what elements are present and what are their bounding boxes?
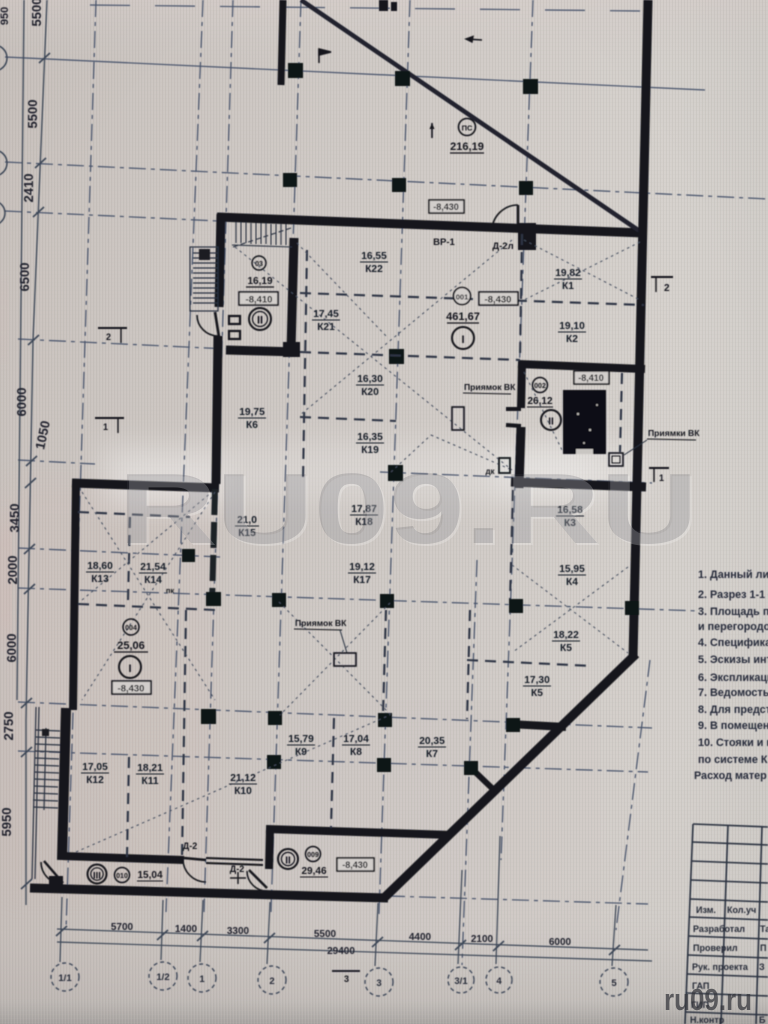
- svg-text:19,82: 19,82: [555, 268, 581, 279]
- svg-text:950: 950: [0, 7, 11, 25]
- svg-text:010: 010: [116, 873, 128, 880]
- svg-text:2: 2: [106, 332, 111, 342]
- svg-text:009: 009: [307, 852, 319, 859]
- svg-text:002: 002: [534, 383, 546, 390]
- svg-text:2: 2: [664, 283, 670, 294]
- svg-text:16,19: 16,19: [247, 276, 272, 287]
- svg-text:1400: 1400: [175, 924, 198, 935]
- svg-text:18,22: 18,22: [553, 630, 579, 641]
- svg-text:461,67: 461,67: [446, 311, 480, 323]
- svg-text:3/1: 3/1: [454, 976, 468, 987]
- svg-text:I: I: [128, 663, 131, 675]
- svg-text:К22: К22: [365, 264, 383, 275]
- svg-text:Та: Та: [760, 924, 768, 934]
- svg-text:6000: 6000: [14, 388, 29, 417]
- svg-text:1. Данный лист: 1. Данный лист: [698, 569, 768, 581]
- svg-text:Приямки ВК: Приямки ВК: [648, 428, 700, 438]
- svg-text:ПС: ПС: [462, 124, 473, 133]
- svg-text:4400: 4400: [409, 932, 432, 943]
- svg-text:5. Эскизы инте: 5. Эскизы инте: [698, 654, 768, 666]
- svg-text:16,55: 16,55: [361, 251, 387, 262]
- svg-text:-8,430: -8,430: [433, 202, 459, 212]
- svg-text:5: 5: [611, 978, 617, 989]
- svg-text:3: 3: [344, 974, 349, 984]
- svg-text:II: II: [548, 417, 554, 428]
- svg-text:Кол.уч: Кол.уч: [727, 905, 756, 915]
- svg-text:5500: 5500: [314, 929, 337, 940]
- svg-text:3. Площадь по: 3. Площадь по: [698, 606, 768, 618]
- svg-text:3: 3: [376, 978, 381, 989]
- svg-text:19,75: 19,75: [239, 407, 265, 418]
- svg-text:К21: К21: [317, 322, 335, 333]
- svg-text:К4: К4: [566, 577, 578, 588]
- svg-text:004: 004: [125, 625, 137, 632]
- svg-text:Расход матер: Расход матер: [694, 770, 767, 782]
- svg-text:16,30: 16,30: [357, 374, 383, 385]
- svg-text:17,30: 17,30: [524, 675, 550, 686]
- svg-text:18,60: 18,60: [87, 561, 113, 572]
- svg-text:ru09.ru: ru09.ru: [664, 982, 752, 1017]
- svg-text:18,21: 18,21: [137, 763, 163, 774]
- svg-text:-8,410: -8,410: [246, 295, 273, 306]
- svg-text:5700: 5700: [111, 922, 134, 933]
- svg-text:III: III: [93, 871, 101, 882]
- svg-text:7. Ведомость п: 7. Ведомость п: [698, 687, 768, 699]
- svg-text:К20: К20: [361, 387, 379, 398]
- svg-text:2000: 2000: [5, 556, 20, 585]
- svg-text:К14: К14: [144, 575, 162, 586]
- svg-text:4: 4: [496, 976, 502, 987]
- svg-text:1/1: 1/1: [58, 973, 72, 984]
- svg-text:2: 2: [269, 976, 274, 987]
- svg-text:6500: 6500: [17, 263, 32, 292]
- svg-text:5500: 5500: [25, 100, 40, 129]
- svg-text:29400: 29400: [327, 946, 355, 957]
- svg-text:-8,430: -8,430: [485, 295, 512, 306]
- svg-text:Изм.: Изм.: [696, 905, 716, 915]
- svg-text:26,12: 26,12: [527, 396, 552, 407]
- svg-text:RU09.RU: RU09.RU: [118, 453, 698, 565]
- svg-text:К10: К10: [234, 786, 252, 797]
- svg-text:К11: К11: [142, 776, 159, 787]
- svg-text:17,04: 17,04: [343, 734, 369, 745]
- svg-text:1/2: 1/2: [156, 972, 169, 983]
- svg-text:Проверил: Проверил: [693, 943, 738, 953]
- svg-text:03: 03: [255, 261, 263, 268]
- svg-text:К5: К5: [560, 643, 572, 654]
- svg-text:9. В помещени: 9. В помещени: [698, 720, 768, 732]
- svg-text:19,10: 19,10: [559, 321, 585, 332]
- svg-text:К2: К2: [566, 334, 578, 345]
- svg-text:17,45: 17,45: [313, 309, 339, 320]
- svg-text:II: II: [257, 315, 263, 327]
- svg-text:К12: К12: [86, 775, 104, 786]
- svg-text:II: II: [285, 856, 291, 867]
- svg-text:15,79: 15,79: [288, 734, 314, 745]
- svg-text:-8,430: -8,430: [342, 860, 368, 870]
- svg-text:К17: К17: [353, 575, 371, 586]
- svg-text:З: З: [759, 962, 765, 972]
- svg-text:2750: 2750: [1, 712, 16, 741]
- svg-text:2100: 2100: [471, 934, 494, 945]
- svg-text:2410: 2410: [21, 174, 36, 203]
- svg-text:10. Стояки и кр: 10. Стояки и кр: [698, 737, 768, 749]
- svg-text:К7: К7: [426, 749, 438, 760]
- svg-text:1: 1: [103, 422, 108, 432]
- svg-text:21,12: 21,12: [230, 773, 256, 784]
- svg-text:-8,430: -8,430: [118, 684, 145, 695]
- svg-text:6000: 6000: [4, 634, 19, 663]
- svg-text:3450: 3450: [7, 504, 22, 533]
- svg-text:8. Для предста: 8. Для предста: [698, 704, 768, 716]
- svg-text:25,06: 25,06: [117, 640, 145, 652]
- svg-text:29,46: 29,46: [301, 866, 326, 877]
- svg-text:Д-2: Д-2: [183, 841, 197, 851]
- svg-text:216,19: 216,19: [450, 141, 484, 153]
- svg-text:К6: К6: [246, 420, 258, 431]
- svg-text:6000: 6000: [549, 937, 572, 948]
- svg-text:ВР-1: ВР-1: [433, 237, 455, 248]
- svg-text:-8,410: -8,410: [578, 373, 604, 383]
- svg-text:20,35: 20,35: [419, 736, 445, 747]
- svg-text:К8: К8: [350, 747, 362, 758]
- svg-text:3300: 3300: [227, 926, 250, 937]
- svg-text:2. Разрез 1-1 с: 2. Разрез 1-1 с: [698, 589, 768, 601]
- svg-text:пк: пк: [166, 586, 175, 595]
- svg-text:4. Спецификац: 4. Спецификац: [698, 637, 768, 649]
- svg-text:и перегородок: и перегородок: [698, 621, 768, 633]
- svg-text:Д-2: Д-2: [230, 864, 244, 874]
- svg-text:по системе К: по системе К: [698, 754, 768, 766]
- svg-text:15,04: 15,04: [137, 870, 162, 881]
- svg-text:Приямок ВК: Приямок ВК: [295, 618, 347, 628]
- svg-text:К1: К1: [562, 281, 574, 292]
- svg-text:Д-2л: Д-2л: [492, 241, 513, 252]
- svg-text:К9: К9: [295, 747, 307, 758]
- svg-text:К13: К13: [91, 574, 109, 585]
- svg-text:Рук. проекта: Рук. проекта: [692, 962, 749, 972]
- svg-text:001: 001: [456, 293, 469, 302]
- svg-text:I: I: [461, 334, 464, 346]
- svg-text:16,35: 16,35: [357, 432, 383, 443]
- svg-text:5500: 5500: [29, 0, 44, 26]
- svg-text:6. Экспликация: 6. Экспликация: [698, 672, 768, 684]
- svg-text:К5: К5: [531, 688, 543, 699]
- svg-text:5950: 5950: [0, 808, 14, 837]
- svg-text:Разработал: Разработал: [693, 924, 745, 934]
- svg-text:1: 1: [199, 974, 205, 985]
- svg-text:Приямок ВК: Приямок ВК: [464, 382, 516, 392]
- svg-text:Б: Б: [759, 1015, 766, 1024]
- svg-text:17,05: 17,05: [82, 762, 108, 773]
- svg-text:П: П: [760, 943, 766, 953]
